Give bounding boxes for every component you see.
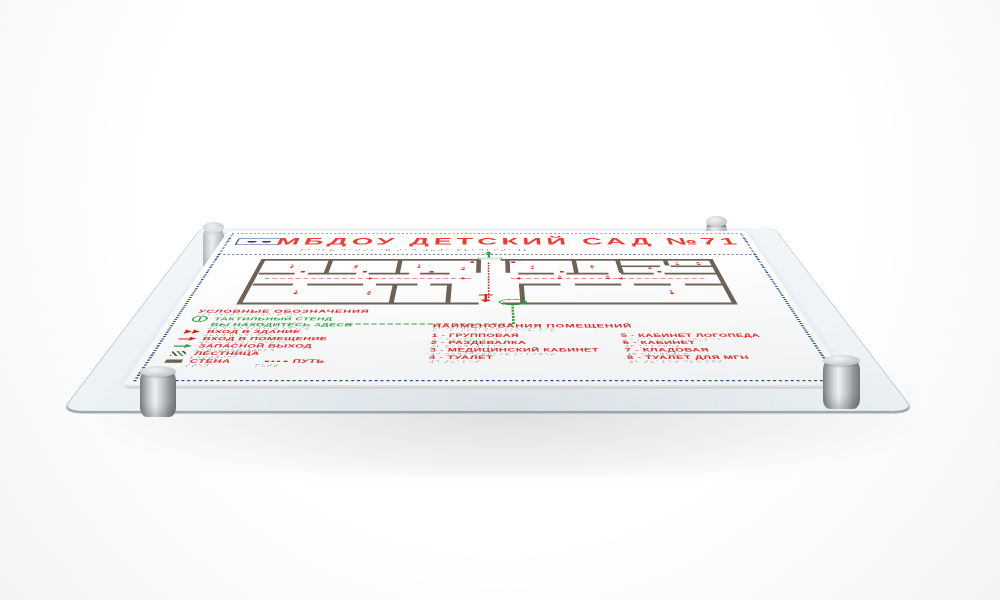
marker-arrow — [675, 264, 680, 265]
building-entrance-arrow — [480, 300, 490, 303]
board-3d: МБДОУ ДЕТСКИЙ САД №71 ⠍⠃⠙⠕⠥ ⠙⠑⠞⠎⠅⠊⠯ ⠎⠁⠙ … — [123, 231, 851, 385]
wall-segment — [502, 303, 738, 305]
marker-arrow — [606, 278, 611, 279]
path-arrow — [369, 277, 374, 279]
wall-segment — [501, 259, 714, 261]
braille-row: ⠼⠓ ⠞⠥⠁⠇⠑⠞ ⠙⠇⠫ ⠍⠛⠝ — [628, 360, 752, 364]
tactile-stand-icon — [190, 316, 209, 322]
door-marker — [363, 271, 367, 272]
wall-segment — [252, 284, 293, 286]
emergency-exit-arrow — [488, 254, 490, 258]
marker-number: 1 — [290, 290, 302, 292]
wall-segment — [368, 273, 409, 275]
wall-swatch-icon — [164, 359, 183, 362]
wall-segment — [575, 284, 622, 286]
wall-segment — [420, 273, 450, 275]
marker-arrow — [669, 293, 674, 294]
room-marker: 5 — [644, 266, 656, 270]
render-scene: МБДОУ ДЕТСКИЙ САД №71 ⠍⠃⠙⠕⠥ ⠙⠑⠞⠎⠅⠊⠯ ⠎⠁⠙ … — [0, 0, 1000, 600]
wall-segment — [395, 261, 402, 273]
room-marker: 2 — [363, 291, 375, 295]
wall-segment — [518, 273, 554, 275]
door-marker — [430, 271, 434, 272]
marker-number: 3 — [554, 276, 565, 278]
wall-segment — [663, 261, 670, 266]
marker-arrow — [289, 267, 294, 268]
standoff-bottom-right — [823, 360, 860, 409]
emergency-exit-pad — [478, 257, 502, 259]
legend-row-wall-path: СТЕНА ПУТЬ ⠎⠞⠑⠝⠁ ⠏⠥⠞⠾ — [159, 358, 326, 368]
wall-segment — [664, 273, 716, 275]
room-list-item: 4 - ТУАЛЕТ ⠼⠙ ⠞⠥⠁⠇⠑⠞ — [428, 355, 493, 364]
room-marker: 7 — [671, 262, 683, 265]
sign-plate: МБДОУ ДЕТСКИЙ САД №71 ⠍⠃⠙⠕⠥ ⠙⠑⠞⠎⠅⠊⠯ ⠎⠁⠙ … — [123, 231, 851, 385]
wall-segment — [258, 273, 295, 275]
braille-row: ⠼⠙ ⠞⠥⠁⠇⠑⠞ — [428, 360, 493, 364]
wall-segment — [261, 259, 481, 261]
wall-segment — [445, 284, 452, 303]
room-marker: 2 — [586, 265, 598, 269]
room-marker: 2 — [350, 265, 362, 269]
wall-segment — [476, 261, 481, 273]
braille-dot — [247, 241, 257, 243]
door-marker — [470, 262, 474, 263]
standoff-bottom-left — [140, 371, 176, 417]
room-marker: 6 — [602, 276, 614, 280]
wall-segment — [519, 284, 561, 286]
wall-segment — [324, 261, 333, 273]
marker-arrow — [461, 269, 466, 270]
room-marker: 4 — [527, 266, 538, 270]
room-marker: 3 — [554, 276, 566, 280]
marker-arrow — [696, 264, 701, 265]
marker-number: 7 — [671, 262, 683, 264]
emergency-exit-icon — [173, 344, 194, 348]
door-marker — [560, 271, 564, 272]
path-line-icon — [264, 361, 287, 362]
wall-segment — [670, 266, 712, 268]
path-arrow — [515, 277, 520, 279]
marker-arrow — [557, 278, 562, 279]
marker-number: 6 — [602, 276, 614, 278]
marker-arrow — [353, 267, 358, 268]
stairs-icon — [170, 351, 188, 356]
marker-number: 2 — [363, 291, 375, 293]
room-marker: 1 — [413, 264, 424, 268]
marker-arrow — [293, 293, 298, 294]
room-marker: 1 — [286, 264, 298, 268]
marker-arrow — [530, 268, 535, 269]
door-marker — [657, 271, 661, 272]
braille-row: ⠎⠞⠑⠝⠁ ⠏⠥⠞⠾ — [184, 364, 324, 368]
door-marker — [511, 262, 515, 263]
marker-number: 5 — [644, 266, 656, 268]
emergency-exit-arrow — [484, 251, 493, 253]
marker-number: 2 — [350, 265, 361, 267]
marker-number: 3 — [458, 267, 469, 269]
legend-label: ПУТЬ — [292, 358, 326, 364]
marker-arrow — [590, 267, 595, 268]
room-entrance-icon — [177, 337, 197, 341]
door-marker — [301, 271, 305, 272]
wall-segment — [566, 273, 608, 275]
wall-segment — [389, 285, 398, 302]
wall-segment — [236, 303, 478, 305]
wall-segment — [308, 273, 357, 275]
marker-number: 1 — [413, 264, 424, 266]
room-marker: 1 — [665, 290, 678, 294]
path-arrow — [462, 277, 467, 279]
marker-arrow — [416, 267, 421, 268]
sign-title: МБДОУ ДЕТСКИЙ САД №71 — [261, 237, 757, 247]
room-marker: 8 — [692, 262, 704, 265]
room-list-item: 8 - ТУАЛЕТ ДЛЯ МГН ⠼⠓ ⠞⠥⠁⠇⠑⠞ ⠙⠇⠫ ⠍⠛⠝ — [626, 355, 752, 364]
wall-segment — [505, 261, 510, 273]
wall-segment — [685, 284, 723, 286]
building-entrance-icon — [182, 329, 202, 333]
floor-plan: 1 2 1 1 2 3 4 2 5 7 8 6 1 3 — [236, 259, 737, 304]
marker-number: 8 — [692, 262, 704, 264]
wall-segment — [572, 261, 579, 273]
marker-arrow — [366, 294, 371, 295]
wall-segment — [621, 273, 654, 275]
path-arrow — [617, 277, 622, 279]
wall-segment — [307, 284, 364, 286]
legend-label: ТАКТИЛЬНЫЙ СТЕНД — [213, 316, 334, 321]
marker-arrow — [648, 268, 653, 269]
room-marker: 1 — [289, 290, 302, 294]
room-marker: 3 — [458, 267, 469, 271]
room-list-heading-braille: ⠝⠁⠊⠍⠑⠝⠕⠺⠁⠝⠊⠫ ⠏⠕⠍⠑⠭⠑⠝⠊⠯ — [432, 328, 556, 331]
marker-number: 2 — [586, 265, 597, 267]
title-braille: ⠍⠃⠙⠕⠥ ⠙⠑⠞⠎⠅⠊⠯ ⠎⠁⠙ ⠼⠶⠼⠁ ⠏⠗⠑⠙⠕⠎⠞⠁⠺⠇ — [299, 249, 531, 252]
marker-number: 1 — [665, 290, 677, 292]
marker-number: 4 — [527, 266, 538, 268]
wall-segment — [634, 284, 671, 286]
